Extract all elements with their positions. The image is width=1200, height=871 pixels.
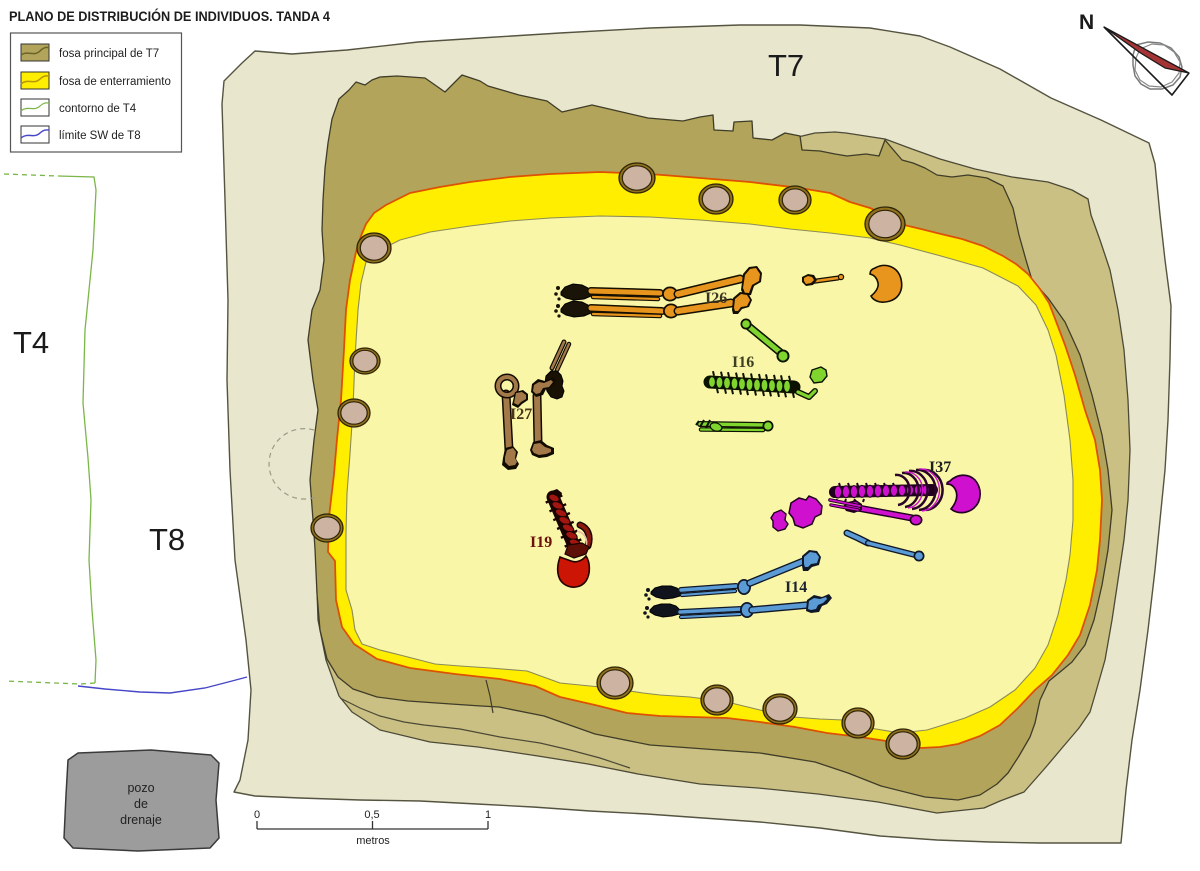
svg-text:1: 1 bbox=[485, 809, 491, 821]
svg-text:T8: T8 bbox=[149, 522, 185, 557]
svg-text:T4: T4 bbox=[13, 325, 49, 360]
svg-text:I14: I14 bbox=[785, 579, 807, 596]
svg-text:metros: metros bbox=[356, 835, 390, 847]
svg-text:I27: I27 bbox=[510, 406, 532, 423]
svg-text:contorno de T4: contorno de T4 bbox=[59, 103, 137, 115]
svg-text:de: de bbox=[134, 797, 148, 811]
svg-text:fosa de enterramiento: fosa de enterramiento bbox=[59, 76, 171, 88]
svg-text:drenaje: drenaje bbox=[120, 813, 162, 827]
svg-text:I16: I16 bbox=[732, 354, 754, 371]
svg-text:N: N bbox=[1079, 11, 1094, 34]
svg-text:I26: I26 bbox=[705, 290, 727, 307]
svg-text:I19: I19 bbox=[530, 534, 552, 551]
svg-text:límite SW de T8: límite SW de T8 bbox=[59, 130, 141, 142]
svg-text:PLANO DE DISTRIBUCIÓN DE INDIV: PLANO DE DISTRIBUCIÓN DE INDIVIDUOS. TAN… bbox=[9, 9, 330, 24]
svg-text:0,5: 0,5 bbox=[364, 809, 379, 821]
svg-text:T7: T7 bbox=[768, 48, 804, 83]
svg-text:0: 0 bbox=[254, 809, 260, 821]
svg-text:pozo: pozo bbox=[127, 781, 154, 795]
svg-text:I37: I37 bbox=[929, 459, 951, 476]
svg-text:fosa principal de T7: fosa principal de T7 bbox=[59, 48, 159, 60]
